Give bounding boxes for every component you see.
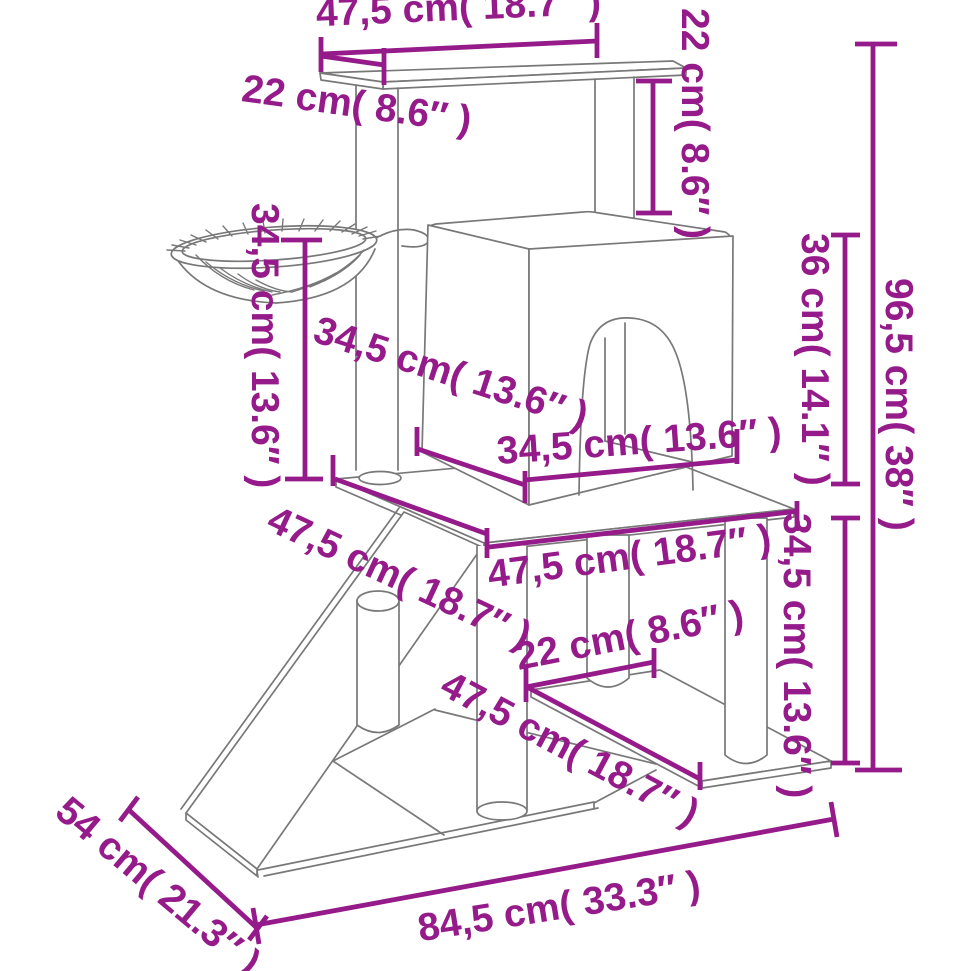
svg-text:36 cm( 14.1″ ): 36 cm( 14.1″ ) [793, 233, 836, 486]
svg-text:34,5 cm( 13.6″ ): 34,5 cm( 13.6″ ) [775, 513, 818, 798]
svg-text:34,5 cm( 13.6″ ): 34,5 cm( 13.6″ ) [243, 203, 286, 488]
svg-text:96,5 cm( 38″ ): 96,5 cm( 38″ ) [877, 278, 920, 531]
svg-text:22 cm( 8.6″ ): 22 cm( 8.6″ ) [673, 8, 716, 239]
